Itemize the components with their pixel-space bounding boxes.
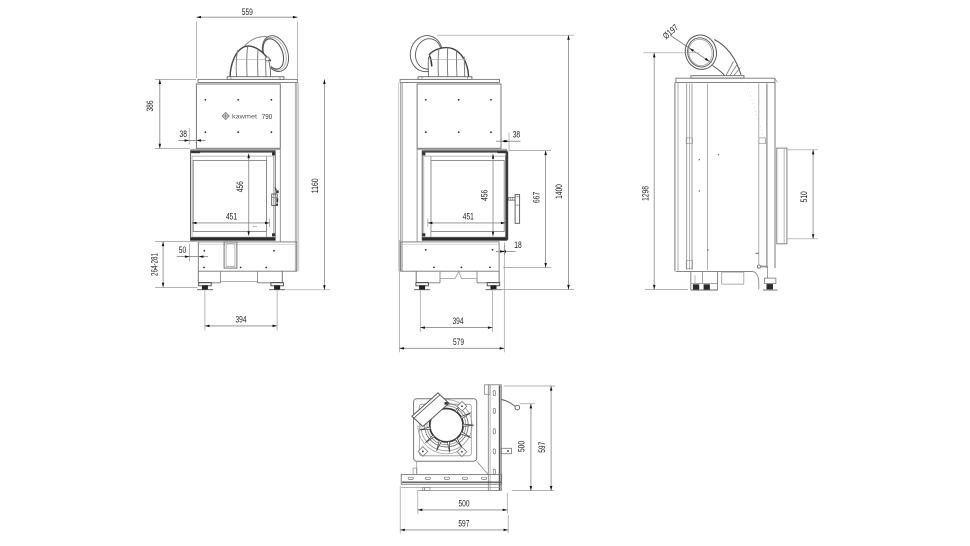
- svg-text:500: 500: [458, 499, 469, 509]
- svg-text:451: 451: [463, 212, 474, 222]
- svg-text:38: 38: [180, 129, 187, 139]
- svg-text:597: 597: [458, 519, 469, 529]
- svg-text:456: 456: [235, 181, 245, 192]
- svg-text:394: 394: [452, 316, 463, 326]
- svg-text:kawmet: kawmet: [232, 114, 257, 121]
- svg-text:510: 510: [799, 191, 809, 202]
- svg-text:559: 559: [242, 7, 253, 17]
- svg-text:1298: 1298: [640, 186, 650, 201]
- svg-text:790: 790: [262, 112, 273, 121]
- svg-text:1160: 1160: [310, 178, 320, 193]
- svg-text:456: 456: [480, 190, 490, 201]
- svg-text:50: 50: [179, 245, 186, 255]
- svg-text:264-281: 264-281: [149, 253, 159, 276]
- svg-text:597: 597: [537, 442, 547, 453]
- svg-text:579: 579: [453, 337, 464, 347]
- svg-text:18: 18: [514, 240, 521, 250]
- svg-text:38: 38: [513, 129, 520, 139]
- svg-text:386: 386: [145, 100, 155, 111]
- svg-text:1400: 1400: [554, 184, 564, 199]
- svg-text:667: 667: [532, 192, 542, 203]
- svg-text:451: 451: [226, 211, 237, 221]
- svg-text:394: 394: [235, 315, 246, 325]
- svg-text:500: 500: [516, 441, 526, 452]
